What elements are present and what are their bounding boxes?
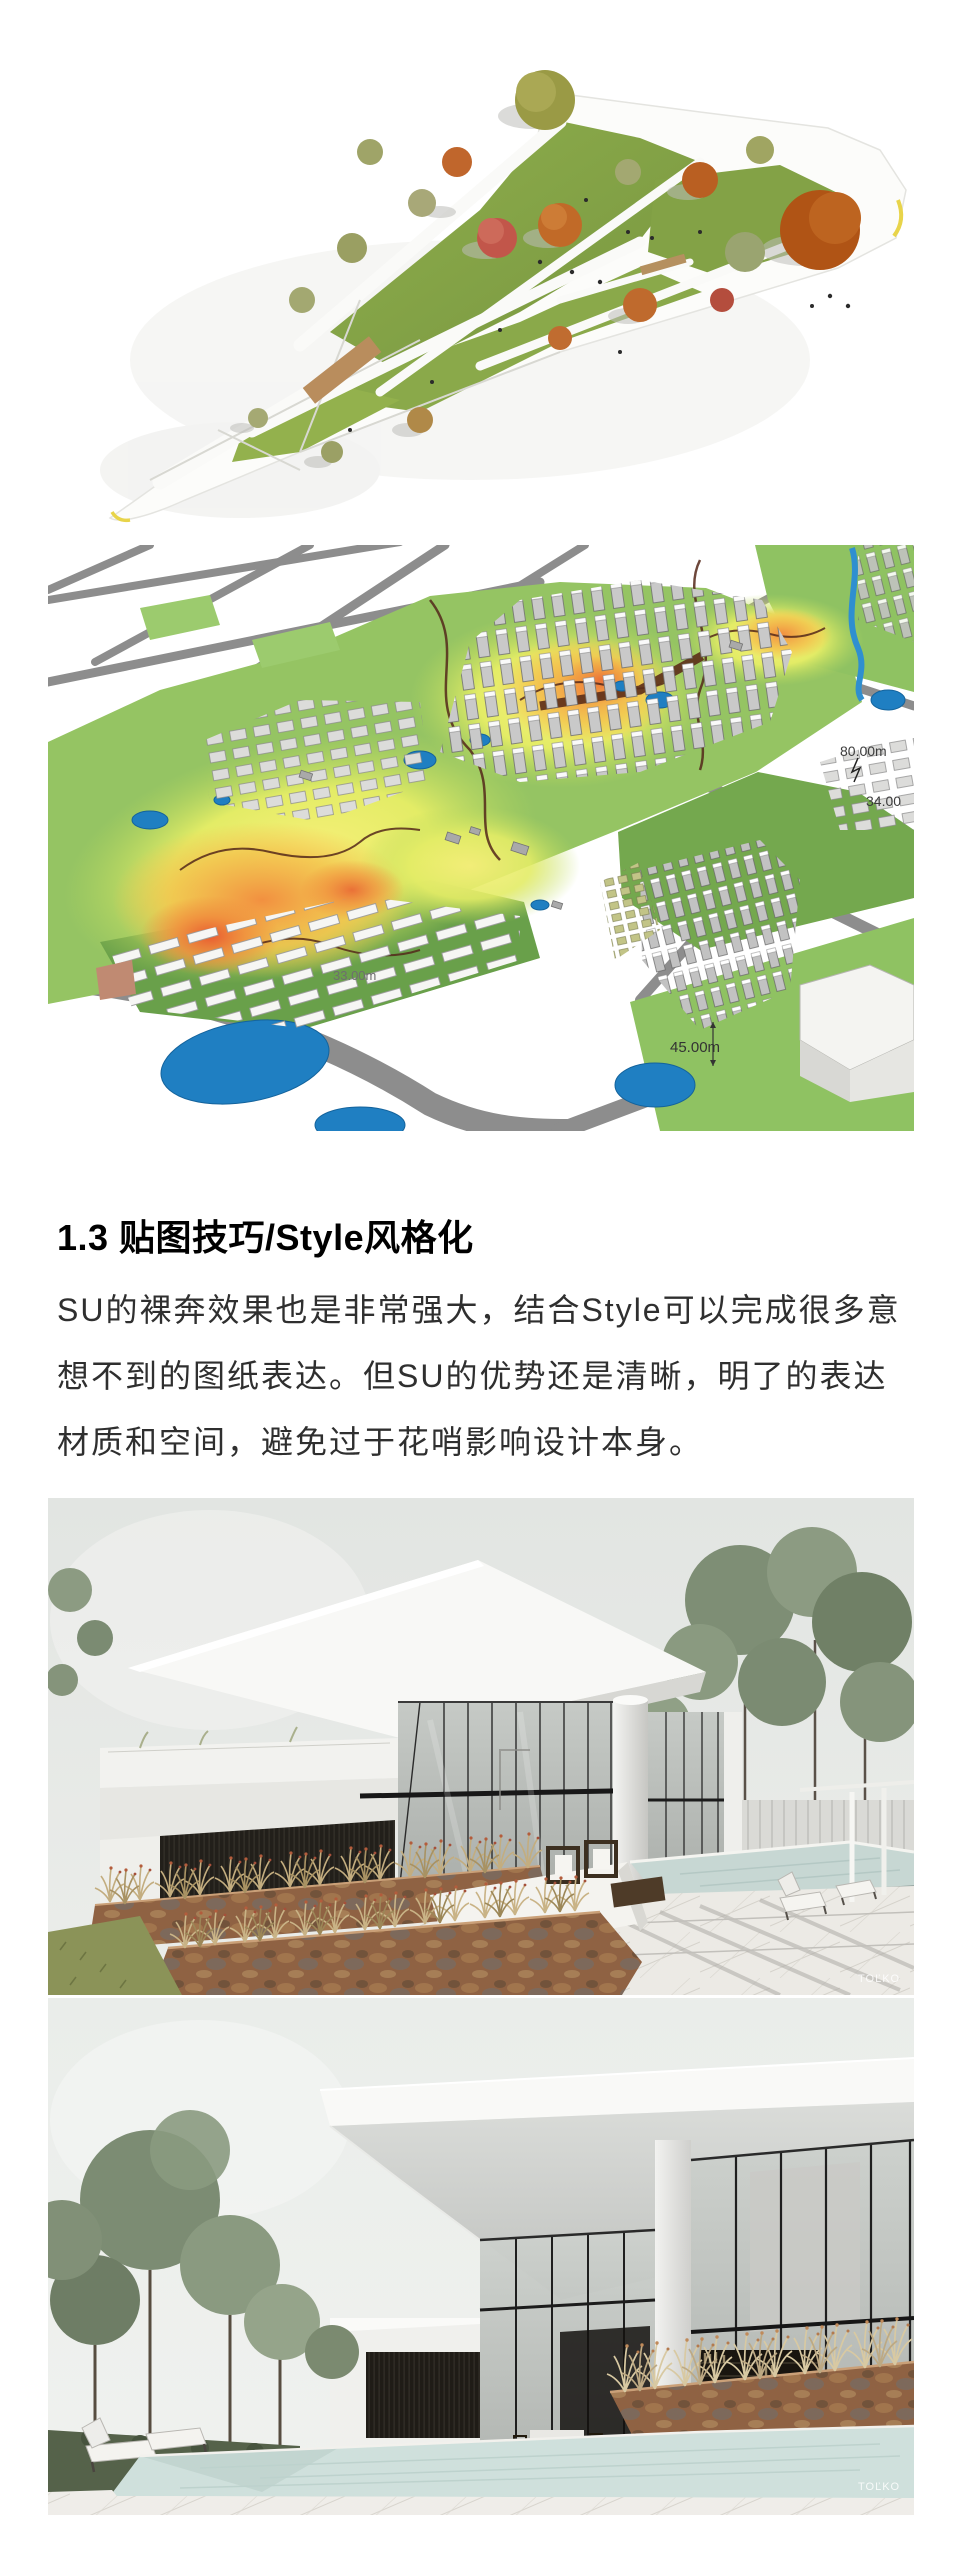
villa2-watermark: TOĽKO: [858, 2481, 900, 2493]
body-line-2: 想不到的图纸表达。但SU的优势还是清晰，明了的表达: [57, 1343, 903, 1409]
villa-terrace-image: TOĽKO: [48, 1498, 914, 1995]
park-model-image: [0, 0, 960, 540]
body-line-3: 材质和空间，避免过于花哨影响设计本身。: [57, 1409, 903, 1475]
label-34m: 34.00: [866, 793, 901, 809]
label-45m: 45.00m: [670, 1039, 720, 1056]
article-page: 80.00m 34.00 33.00m 45.00m 1.3 贴图技巧/Styl…: [0, 0, 960, 2576]
body-paragraph: SU的裸奔效果也是非常强大，结合Style可以完成很多意 想不到的图纸表达。但S…: [57, 1277, 903, 1475]
villa1-watermark: TOĽKO: [858, 1973, 900, 1985]
label-33m: 33.00m: [333, 968, 376, 983]
urban-model-image: 80.00m 34.00 33.00m 45.00m: [48, 545, 914, 1131]
figure-villa-pool[interactable]: TOĽKO: [48, 1998, 914, 2515]
figure-urban-model[interactable]: 80.00m 34.00 33.00m 45.00m: [48, 545, 914, 1131]
label-80m: 80.00m: [840, 743, 887, 759]
figure-villa-terrace[interactable]: TOĽKO: [48, 1498, 914, 1995]
villa-pool-image: TOĽKO: [48, 1998, 914, 2515]
section-heading: 1.3 贴图技巧/Style风格化: [57, 1213, 903, 1262]
body-line-1: SU的裸奔效果也是非常强大，结合Style可以完成很多意: [57, 1277, 903, 1343]
figure-park-model[interactable]: [0, 0, 960, 540]
